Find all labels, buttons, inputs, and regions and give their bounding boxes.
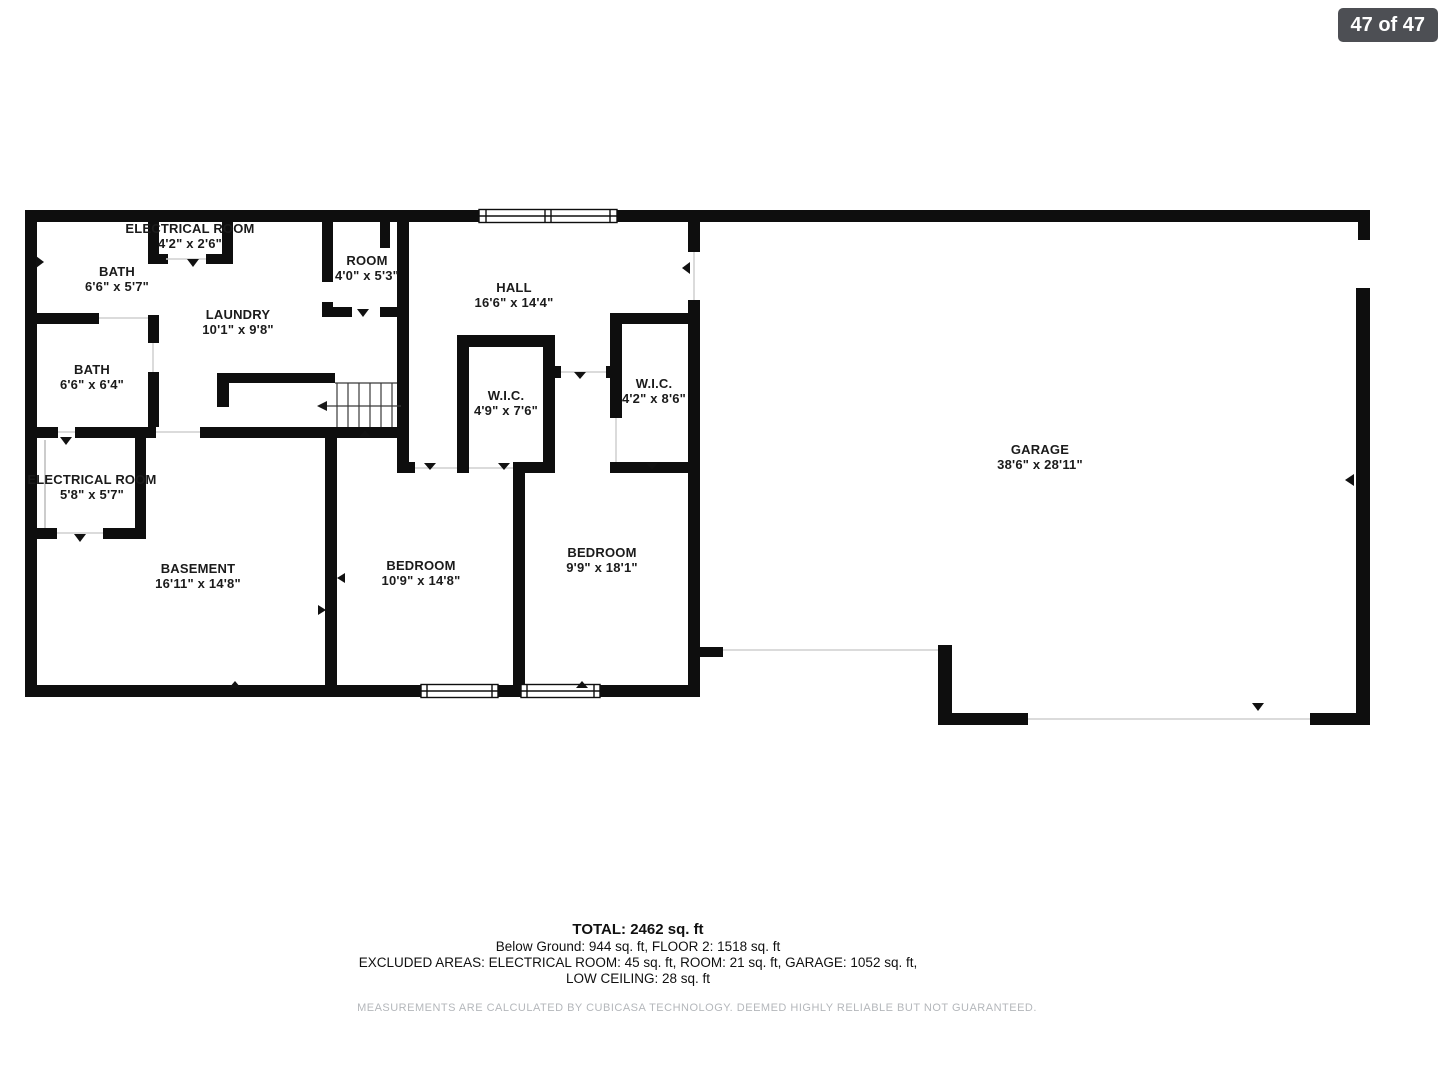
room-name: ROOM <box>346 253 387 268</box>
summary-excluded: EXCLUDED AREAS: ELECTRICAL ROOM: 45 sq. … <box>359 955 917 971</box>
room-name: BATH <box>99 264 135 279</box>
stairs-group <box>327 383 401 427</box>
room-label-wic-2: W.I.C. 4'2" x 8'6" <box>622 376 686 406</box>
room-name: LAUNDRY <box>206 307 270 322</box>
summary-areas: Below Ground: 944 sq. ft, FLOOR 2: 1518 … <box>359 939 917 955</box>
room-name: ELECTRICAL ROOM <box>125 221 254 236</box>
summary-low-ceiling: LOW CEILING: 28 sq. ft <box>359 971 917 987</box>
floor-plan: ELECTRICAL ROOM 4'2" x 2'6" BATH 6'6" x … <box>0 0 1445 1080</box>
room-label-electrical-room-upper: ELECTRICAL ROOM 4'2" x 2'6" <box>125 221 254 251</box>
room-dims: 4'2" x 8'6" <box>622 391 686 406</box>
room-label-room: ROOM 4'0" x 5'3" <box>335 253 399 283</box>
room-dims: 38'6" x 28'11" <box>997 457 1083 472</box>
room-label-laundry: LAUNDRY 10'1" x 9'8" <box>202 307 274 337</box>
room-dims: 5'8" x 5'7" <box>60 487 124 502</box>
room-label-electrical-room-lower: ELECTRICAL ROOM 5'8" x 5'7" <box>27 472 156 502</box>
page-counter-badge: 47 of 47 <box>1338 8 1438 42</box>
room-name: HALL <box>496 280 531 295</box>
room-dims: 10'9" x 14'8" <box>382 573 461 588</box>
summary-total: TOTAL: 2462 sq. ft <box>359 921 917 939</box>
floorplan-summary: TOTAL: 2462 sq. ft Below Ground: 944 sq.… <box>359 921 917 987</box>
room-dims: 4'0" x 5'3" <box>335 268 399 283</box>
room-label-bedroom-2: BEDROOM 9'9" x 18'1" <box>566 545 638 575</box>
room-label-bath-upper: BATH 6'6" x 5'7" <box>85 264 149 294</box>
room-name: W.I.C. <box>488 388 525 403</box>
floorplan-drawing <box>0 0 1445 1080</box>
room-label-wic-1: W.I.C. 4'9" x 7'6" <box>474 388 538 418</box>
room-dims: 6'6" x 6'4" <box>60 377 124 392</box>
room-dims: 6'6" x 5'7" <box>85 279 149 294</box>
room-dims: 4'2" x 2'6" <box>158 236 222 251</box>
room-name: ELECTRICAL ROOM <box>27 472 156 487</box>
stairs-direction-arrow <box>317 401 327 411</box>
room-label-basement: BASEMENT 16'11" x 14'8" <box>155 561 241 591</box>
room-dims: 16'6" x 14'4" <box>475 295 554 310</box>
room-label-bath-lower: BATH 6'6" x 6'4" <box>60 362 124 392</box>
room-dims: 9'9" x 18'1" <box>566 560 638 575</box>
room-label-hall: HALL 16'6" x 14'4" <box>475 280 554 310</box>
room-dims: 16'11" x 14'8" <box>155 576 241 591</box>
gallery-viewer: ELECTRICAL ROOM 4'2" x 2'6" BATH 6'6" x … <box>0 0 1445 1080</box>
room-name: GARAGE <box>1011 442 1069 457</box>
room-name: W.I.C. <box>636 376 673 391</box>
room-dims: 10'1" x 9'8" <box>202 322 274 337</box>
room-name: BATH <box>74 362 110 377</box>
room-name: BEDROOM <box>386 558 455 573</box>
room-dims: 4'9" x 7'6" <box>474 403 538 418</box>
room-label-garage: GARAGE 38'6" x 28'11" <box>997 442 1083 472</box>
room-label-bedroom-1: BEDROOM 10'9" x 14'8" <box>382 558 461 588</box>
measurement-disclaimer: MEASUREMENTS ARE CALCULATED BY CUBICASA … <box>357 1002 1037 1015</box>
room-name: BASEMENT <box>161 561 236 576</box>
walls-group <box>25 210 1370 725</box>
room-name: BEDROOM <box>567 545 636 560</box>
